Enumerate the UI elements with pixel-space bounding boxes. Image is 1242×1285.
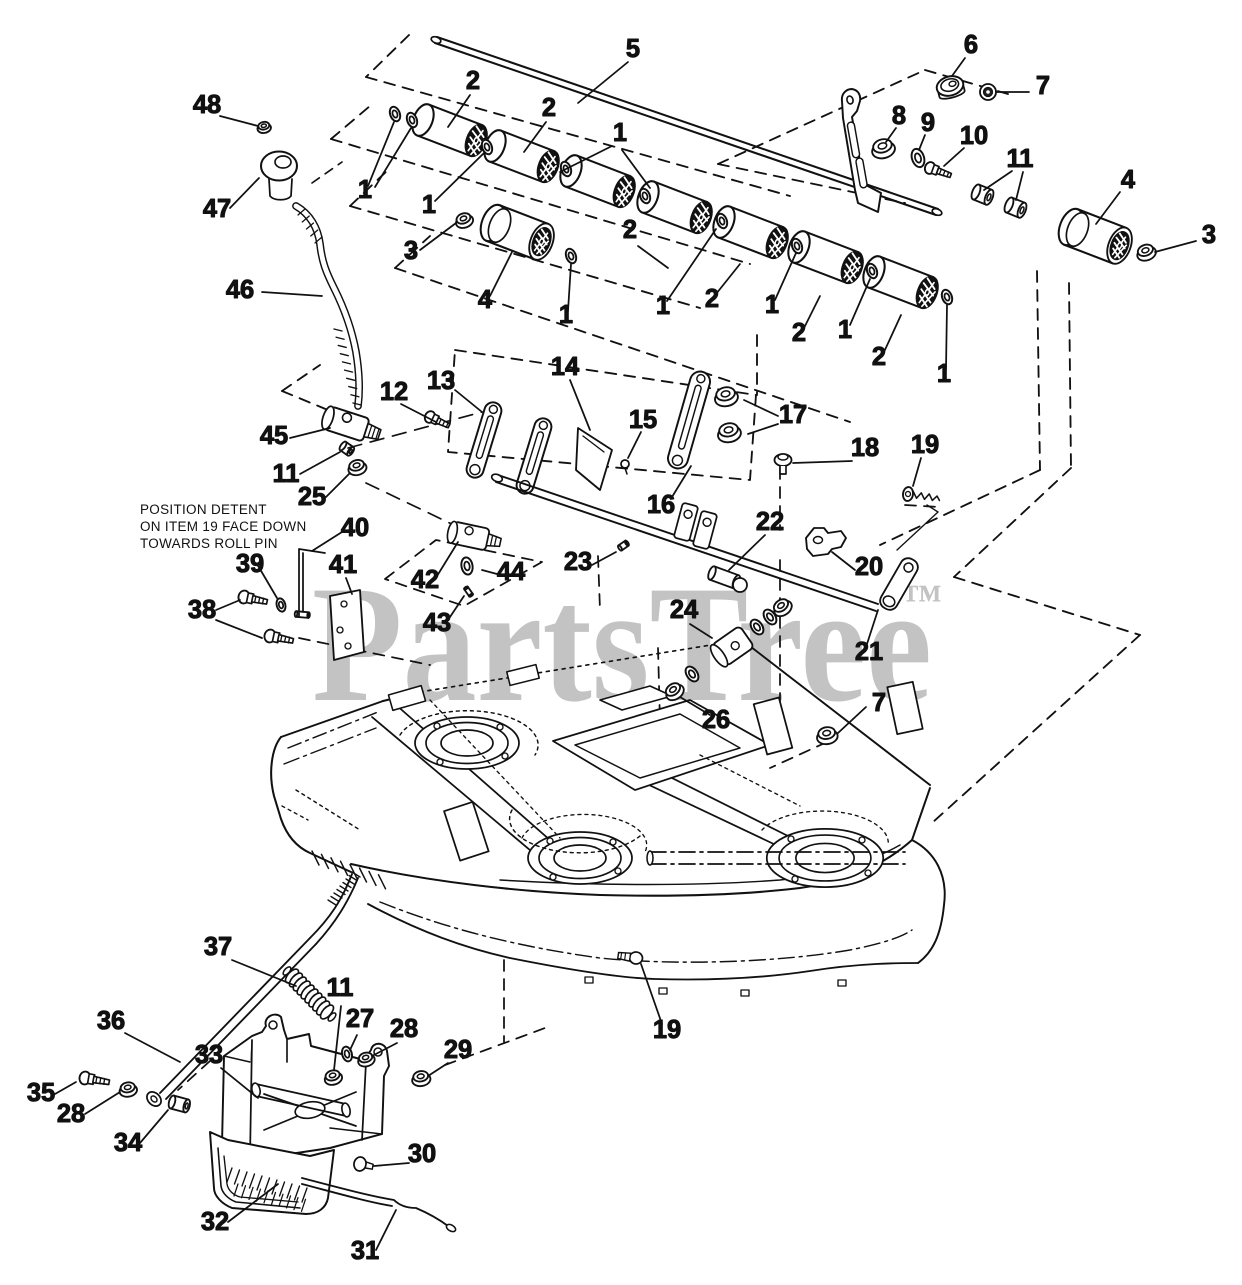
svg-text:1: 1 xyxy=(656,292,670,320)
svg-text:4: 4 xyxy=(1121,166,1136,194)
svg-text:3: 3 xyxy=(404,237,418,265)
svg-text:36: 36 xyxy=(97,1007,125,1035)
svg-text:44: 44 xyxy=(497,558,526,586)
svg-text:8: 8 xyxy=(892,102,906,130)
svg-text:33: 33 xyxy=(195,1041,223,1069)
svg-text:47: 47 xyxy=(203,195,231,223)
svg-text:1: 1 xyxy=(422,191,436,219)
svg-text:ON ITEM 19 FACE DOWN: ON ITEM 19 FACE DOWN xyxy=(140,519,307,534)
svg-text:2: 2 xyxy=(705,285,719,313)
svg-text:23: 23 xyxy=(564,548,592,576)
svg-text:12: 12 xyxy=(380,378,408,406)
svg-text:19: 19 xyxy=(911,431,939,459)
svg-text:9: 9 xyxy=(921,109,935,137)
svg-text:46: 46 xyxy=(226,276,254,304)
svg-text:25: 25 xyxy=(298,483,326,511)
svg-text:37: 37 xyxy=(204,933,232,961)
svg-text:11: 11 xyxy=(1007,145,1034,173)
svg-text:17: 17 xyxy=(779,401,807,429)
svg-text:7: 7 xyxy=(872,689,886,717)
svg-text:11: 11 xyxy=(273,460,300,488)
svg-text:28: 28 xyxy=(390,1015,418,1043)
svg-text:41: 41 xyxy=(329,551,357,579)
svg-text:34: 34 xyxy=(114,1129,143,1157)
svg-text:6: 6 xyxy=(964,31,978,59)
svg-text:2: 2 xyxy=(542,94,556,122)
svg-text:18: 18 xyxy=(851,434,879,462)
svg-text:39: 39 xyxy=(236,550,264,578)
svg-text:28: 28 xyxy=(57,1100,85,1128)
svg-text:13: 13 xyxy=(427,367,455,395)
svg-text:45: 45 xyxy=(260,422,288,450)
svg-text:5: 5 xyxy=(626,35,640,63)
svg-text:1: 1 xyxy=(937,360,951,388)
svg-text:30: 30 xyxy=(408,1140,436,1168)
svg-text:2: 2 xyxy=(872,343,886,371)
svg-text:1: 1 xyxy=(613,119,627,147)
svg-text:20: 20 xyxy=(855,553,883,581)
svg-text:11: 11 xyxy=(327,974,354,1002)
svg-text:19: 19 xyxy=(653,1016,681,1044)
svg-text:16: 16 xyxy=(647,491,675,519)
svg-text:48: 48 xyxy=(193,91,221,119)
svg-text:22: 22 xyxy=(756,508,784,536)
svg-text:26: 26 xyxy=(702,706,730,734)
svg-text:POSITION DETENT: POSITION DETENT xyxy=(140,502,267,517)
svg-text:TOWARDS ROLL PIN: TOWARDS ROLL PIN xyxy=(140,536,278,551)
svg-text:31: 31 xyxy=(351,1237,379,1265)
svg-text:1: 1 xyxy=(838,316,852,344)
svg-text:7: 7 xyxy=(1036,72,1050,100)
svg-text:40: 40 xyxy=(341,514,369,542)
svg-text:42: 42 xyxy=(411,566,439,594)
svg-text:2: 2 xyxy=(623,216,637,244)
svg-text:3: 3 xyxy=(1202,221,1216,249)
svg-text:32: 32 xyxy=(201,1208,229,1236)
svg-text:15: 15 xyxy=(629,406,657,434)
svg-text:35: 35 xyxy=(27,1079,55,1107)
svg-text:21: 21 xyxy=(855,638,883,666)
svg-text:2: 2 xyxy=(792,319,806,347)
svg-text:27: 27 xyxy=(346,1005,374,1033)
svg-text:29: 29 xyxy=(444,1036,472,1064)
svg-text:24: 24 xyxy=(670,596,699,624)
svg-text:43: 43 xyxy=(423,609,451,637)
svg-text:14: 14 xyxy=(551,353,580,381)
svg-text:1: 1 xyxy=(559,301,573,329)
svg-text:10: 10 xyxy=(960,122,988,150)
svg-text:38: 38 xyxy=(188,596,216,624)
svg-text:2: 2 xyxy=(466,67,480,95)
svg-text:4: 4 xyxy=(478,286,493,314)
